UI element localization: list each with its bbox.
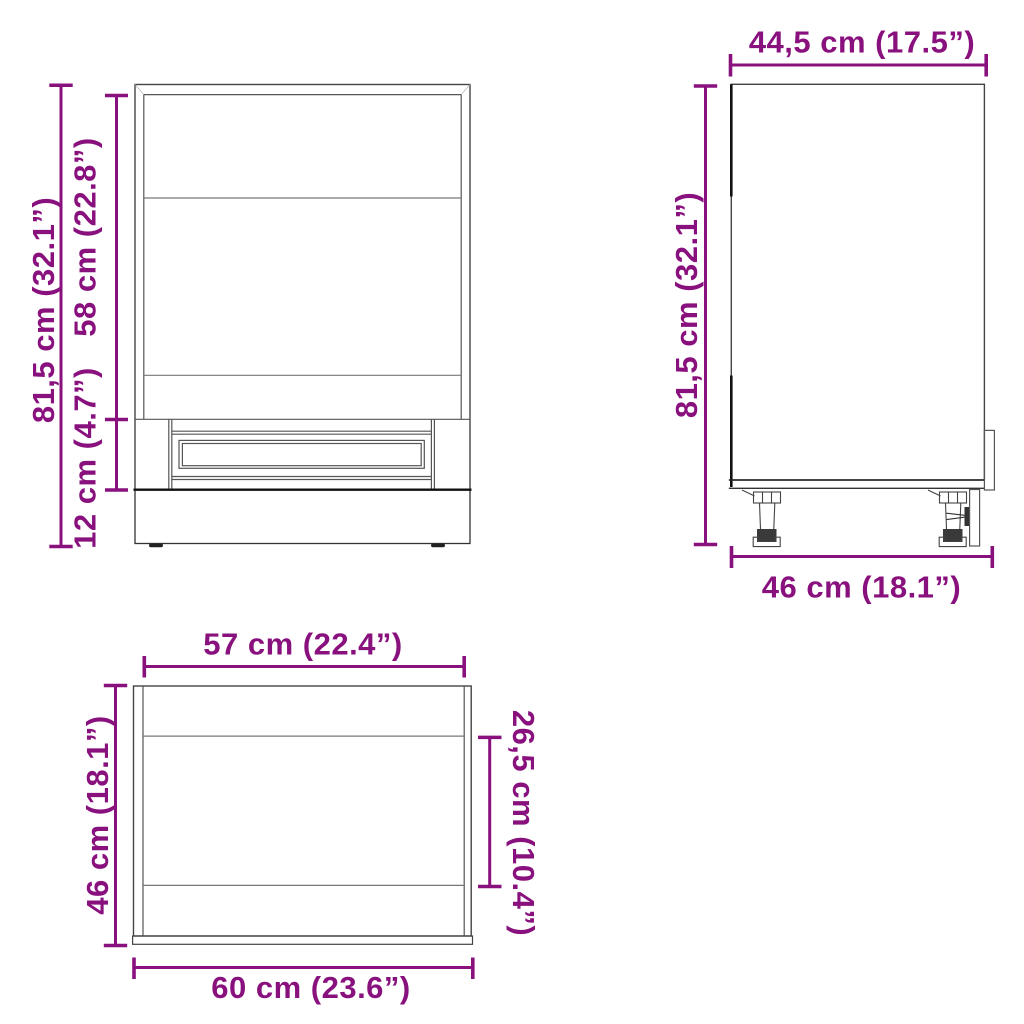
svg-text:81,5 cm (32.1”): 81,5 cm (32.1”) — [669, 192, 704, 418]
svg-text:46 cm (18.1”): 46 cm (18.1”) — [762, 570, 962, 605]
svg-text:46 cm (18.1”): 46 cm (18.1”) — [80, 715, 115, 915]
svg-text:58 cm (22.8”): 58 cm (22.8”) — [68, 137, 103, 337]
svg-text:57 cm (22.4”): 57 cm (22.4”) — [203, 627, 403, 662]
svg-text:60 cm (23.6”): 60 cm (23.6”) — [211, 970, 411, 1005]
svg-text:44,5 cm (17.5”): 44,5 cm (17.5”) — [749, 24, 975, 59]
svg-text:81,5 cm (32.1”): 81,5 cm (32.1”) — [26, 197, 61, 423]
svg-text:12 cm (4.7”): 12 cm (4.7”) — [68, 367, 103, 549]
svg-text:26,5 cm (10.4”): 26,5 cm (10.4”) — [506, 710, 541, 936]
